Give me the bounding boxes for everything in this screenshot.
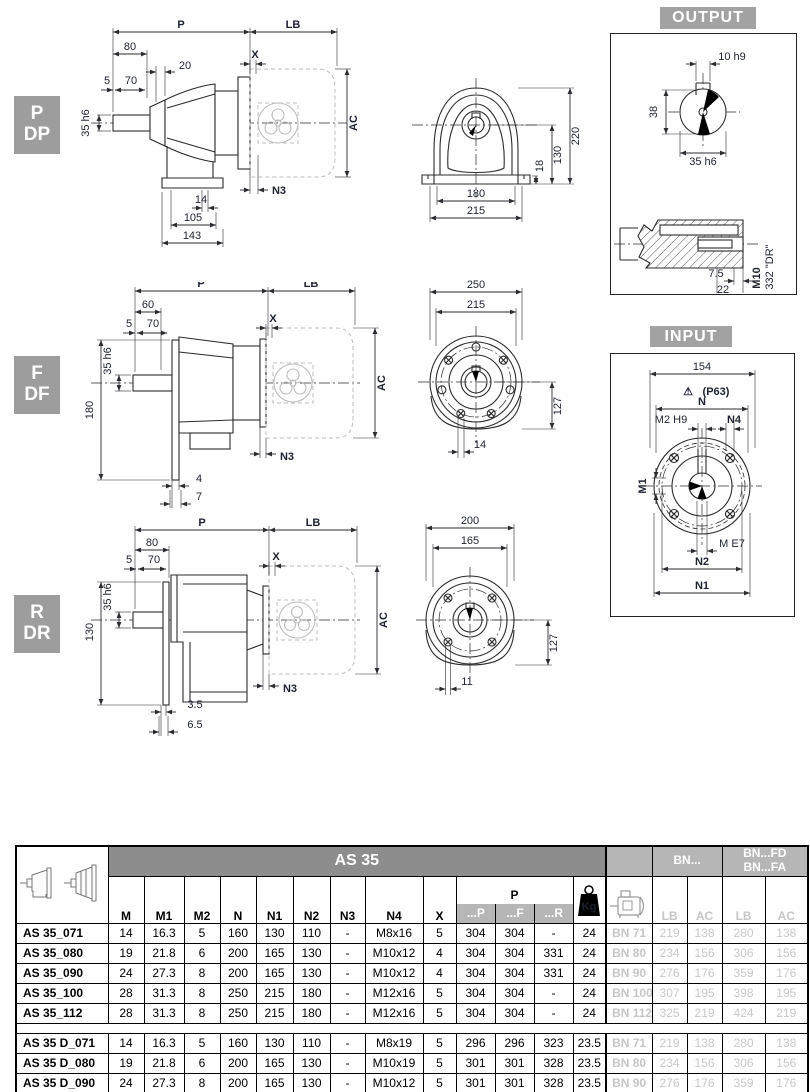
dim-value-cell: M12x16 <box>365 1003 423 1023</box>
dim-value-cell: 130 <box>256 923 293 943</box>
dim-value-cell: - <box>534 983 573 1003</box>
motor-dim-cell: 156 <box>687 943 722 963</box>
motor-dim-cell: 156 <box>765 943 808 963</box>
dim-value-cell: 328 <box>534 1053 573 1073</box>
p-group-header: P ...P ...F ...R <box>456 876 573 923</box>
dim-value-cell: 24 <box>573 983 606 1003</box>
dim-label-X: X <box>272 551 280 563</box>
motor-band <box>606 846 652 876</box>
output-label-text: OUTPUT <box>672 9 744 27</box>
dim-value-cell: 160 <box>220 1033 256 1053</box>
table-row: AS 35_0801921.86200165130-M10x1243043043… <box>16 943 808 963</box>
dim-value-cell: 24 <box>573 963 606 983</box>
dim-label-220: 220 <box>570 127 582 145</box>
dim-value-cell: 4 <box>423 963 456 983</box>
dim-value-cell: 165 <box>256 943 293 963</box>
dim-value-cell: 250 <box>220 1003 256 1023</box>
table-row: AS 35_0711416.35160130110-M8x165304304-2… <box>16 923 808 943</box>
motor-dim-cell: 176 <box>687 1073 722 1092</box>
dim-value-cell: 31.3 <box>144 1003 184 1023</box>
dim-label-105: 105 <box>184 212 202 224</box>
dim-label-N1: N1 <box>695 580 709 592</box>
bnfd-line1: BN...FD <box>723 847 808 861</box>
dim-label-35h6: 35 h6 <box>80 109 92 137</box>
subcol-P: ...P <box>457 904 496 923</box>
dim-label-M2H9: M2 H9 <box>655 414 687 426</box>
dim-value-cell: 304 <box>456 983 495 1003</box>
dim-label-80: 80 <box>124 41 136 53</box>
dim-value-cell: M10x12 <box>365 1073 423 1092</box>
dim-label-4: 4 <box>196 473 202 485</box>
dim-label-N: N <box>698 396 706 408</box>
dim-value-cell: 200 <box>220 943 256 963</box>
gearbox-icon-single <box>20 868 51 898</box>
dim-value-cell: 4 <box>423 943 456 963</box>
dim-value-cell: M8x19 <box>365 1033 423 1053</box>
dim-label-P: P <box>177 19 184 31</box>
dim-label-DIN332: DIN 332 "DR" <box>764 244 776 293</box>
dim-value-cell: 21.8 <box>144 943 184 963</box>
dim-value-cell: 180 <box>293 1003 330 1023</box>
dim-label-70: 70 <box>147 318 159 330</box>
dim-label-14: 14 <box>474 439 486 451</box>
dim-label-M10: M10 <box>751 267 763 288</box>
bnfd-line2: BN...FA <box>723 861 808 875</box>
dim-value-cell: 24 <box>108 1073 144 1092</box>
dim-label-70: 70 <box>148 554 160 566</box>
dim-value-cell: 130 <box>256 1033 293 1053</box>
pdp-side-view-drawing: P LB 80 20 X 5 70 35 h6 AC N3 14 105 143 <box>15 12 405 268</box>
dim-value-cell: 200 <box>220 1053 256 1073</box>
dim-value-cell: 28 <box>108 983 144 1003</box>
motor-dim-cell: 219 <box>652 923 687 943</box>
model-cell: AS 35_112 <box>16 1003 108 1023</box>
dim-value-cell: 8 <box>184 1073 220 1092</box>
weight-column-header: Kg <box>573 876 606 923</box>
dim-value-cell: 31.3 <box>144 983 184 1003</box>
dim-label-5: 5 <box>126 318 132 330</box>
dim-value-cell: 23.5 <box>573 1053 606 1073</box>
dim-value-cell: 5 <box>423 923 456 943</box>
dim-label-22: 22 <box>717 284 729 293</box>
dim-value-cell: 304 <box>456 1003 495 1023</box>
dim-label-215: 215 <box>467 205 485 217</box>
dim-value-cell: 304 <box>495 983 534 1003</box>
dim-value-cell: 27.3 <box>144 1073 184 1092</box>
col-header-bnfd-ac: AC <box>765 876 808 923</box>
dim-value-cell: - <box>534 923 573 943</box>
col-header-bn-lb: LB <box>652 876 687 923</box>
table-row: AS 35 D_0902427.38200165130-M10x12530130… <box>16 1073 808 1092</box>
motor-dim-cell: 325 <box>652 1003 687 1023</box>
dim-label-N3: N3 <box>283 683 297 695</box>
dim-value-cell: - <box>330 1003 365 1023</box>
dim-value-cell: - <box>330 1073 365 1092</box>
motor-dim-cell: 306 <box>722 1053 765 1073</box>
motor-dim-cell: 195 <box>765 983 808 1003</box>
dim-label-6.5: 6.5 <box>187 719 202 731</box>
dim-value-cell: 301 <box>456 1053 495 1073</box>
input-label-text: INPUT <box>665 328 718 346</box>
dim-value-cell: M10x12 <box>365 963 423 983</box>
dim-label-154: 154 <box>693 361 711 373</box>
dim-label-35h6: 35 h6 <box>689 156 717 168</box>
dim-value-cell: 14 <box>108 1033 144 1053</box>
motor-dim-cell: 219 <box>652 1033 687 1053</box>
dim-label-70: 70 <box>125 75 137 87</box>
input-detail-drawing: 154 ⚠ (P63) N M2 H9 N4 M1 M E7 N2 N1 <box>610 353 793 615</box>
model-cell: AS 35_080 <box>16 943 108 963</box>
col-header-N2: N2 <box>293 876 330 923</box>
dim-value-cell: - <box>330 1053 365 1073</box>
motor-dim-cell: 195 <box>687 983 722 1003</box>
dim-value-cell: 304 <box>456 943 495 963</box>
dim-value-cell: 165 <box>256 1073 293 1092</box>
catalog-page: P DP F DF R DR P LB 80 20 X 5 70 35 h6 A… <box>0 0 810 1092</box>
dim-label-ME7: M E7 <box>719 538 745 550</box>
dim-value-cell: 110 <box>293 1033 330 1053</box>
motor-size-cell: BN 100 <box>606 983 652 1003</box>
model-cell: AS 35_090 <box>16 963 108 983</box>
dim-value-cell: 110 <box>293 923 330 943</box>
dim-value-cell: 5 <box>423 1053 456 1073</box>
dim-label-11: 11 <box>461 676 472 688</box>
dim-value-cell: M8x16 <box>365 923 423 943</box>
dim-value-cell: 200 <box>220 1073 256 1092</box>
motor-dim-cell: 234 <box>652 1053 687 1073</box>
dim-value-cell: 200 <box>220 963 256 983</box>
motor-dim-cell: 424 <box>722 1003 765 1023</box>
model-cell: AS 35_071 <box>16 923 108 943</box>
motor-dim-cell: 280 <box>722 923 765 943</box>
dim-label-N3: N3 <box>272 185 286 197</box>
dim-label-80: 80 <box>146 537 158 549</box>
dim-label-215: 215 <box>467 299 485 311</box>
dim-value-cell: 323 <box>534 1033 573 1053</box>
col-header-M1: M1 <box>144 876 184 923</box>
dim-label-10h9: 10 h9 <box>718 51 746 63</box>
dim-value-cell: - <box>330 983 365 1003</box>
dim-value-cell: M10x19 <box>365 1053 423 1073</box>
subcol-R: ...R <box>534 904 573 923</box>
motor-dim-cell: 219 <box>687 1003 722 1023</box>
col-header-bn-ac: AC <box>687 876 722 923</box>
fdf-front-view-drawing: 250 215 127 14 <box>400 278 600 490</box>
model-column-header <box>16 846 108 923</box>
dim-label-7.5: 7.5 <box>708 268 723 280</box>
dim-value-cell: 21.8 <box>144 1053 184 1073</box>
series-title: AS 35 <box>108 846 606 876</box>
dim-value-cell: 6 <box>184 943 220 963</box>
dim-label-7: 7 <box>196 491 202 503</box>
motor-dim-cell: 307 <box>652 983 687 1003</box>
motor-dim-cell: 234 <box>652 943 687 963</box>
dim-value-cell: M12x16 <box>365 983 423 1003</box>
dim-value-cell: 24 <box>573 923 606 943</box>
dim-value-cell: M10x12 <box>365 943 423 963</box>
dim-value-cell: 8 <box>184 963 220 983</box>
motor-dim-cell: 138 <box>687 1033 722 1053</box>
dim-label-200: 200 <box>461 515 479 527</box>
dim-label-X: X <box>269 313 277 325</box>
group-separator <box>16 1023 808 1033</box>
dim-label-35h6: 35 h6 <box>102 583 114 611</box>
dim-label-165: 165 <box>461 535 479 547</box>
dim-label-AC: AC <box>378 612 390 628</box>
dim-label-20: 20 <box>179 60 191 72</box>
motor-dim-cell: 176 <box>765 963 808 983</box>
dim-value-cell: 304 <box>456 963 495 983</box>
col-header-X: X <box>423 876 456 923</box>
col-header-M2: M2 <box>184 876 220 923</box>
pdp-front-view-drawing: 220 130 18 180 215 <box>398 38 603 263</box>
motor-size-cell: BN 90 <box>606 963 652 983</box>
dimension-table: AS 35 BN... BN...FD BN...FA M M1 M2 N N1… <box>15 845 809 1092</box>
motor-size-cell: BN 112 <box>606 1003 652 1023</box>
dim-value-cell: 296 <box>456 1033 495 1053</box>
motor-size-cell: BN 71 <box>606 923 652 943</box>
bn-group-header: BN... <box>652 846 722 876</box>
dim-value-cell: - <box>330 963 365 983</box>
dim-value-cell: 24 <box>573 943 606 963</box>
dim-label-LB: LB <box>306 517 321 529</box>
dim-value-cell: 130 <box>293 943 330 963</box>
dim-value-cell: - <box>330 923 365 943</box>
table-row: AS 35_1122831.38250215180-M12x165304304-… <box>16 1003 808 1023</box>
motor-size-cell: BN 80 <box>606 1053 652 1073</box>
dim-value-cell: 8 <box>184 983 220 1003</box>
dim-label-N2: N2 <box>695 556 709 568</box>
motor-dim-cell: 138 <box>765 923 808 943</box>
dim-value-cell: 24 <box>108 963 144 983</box>
dim-value-cell: 304 <box>456 923 495 943</box>
dim-value-cell: 215 <box>256 983 293 1003</box>
dim-value-cell: 24 <box>573 1003 606 1023</box>
dim-value-cell: 304 <box>495 943 534 963</box>
dim-value-cell: 180 <box>293 983 330 1003</box>
fdf-side-view-drawing: P LB 60 X 5 70 35 h6 180 AC N3 4 7 <box>15 282 405 512</box>
dim-value-cell: - <box>330 943 365 963</box>
dim-value-cell: 304 <box>495 963 534 983</box>
dim-label-5: 5 <box>104 75 110 87</box>
dim-label-250: 250 <box>467 279 485 291</box>
warning-icon: ⚠ <box>683 386 693 398</box>
dim-label-38: 38 <box>648 106 660 118</box>
motor-dim-cell: 219 <box>765 1003 808 1023</box>
dim-label-143: 143 <box>183 230 201 242</box>
motor-dim-cell: 156 <box>765 1053 808 1073</box>
dim-value-cell: 23.5 <box>573 1033 606 1053</box>
dim-label-N4: N4 <box>727 414 742 426</box>
motor-dim-cell: 359 <box>722 963 765 983</box>
dim-value-cell: 5 <box>184 1033 220 1053</box>
model-cell: AS 35 D_090 <box>16 1073 108 1092</box>
dim-label-180: 180 <box>467 188 485 200</box>
dim-value-cell: 27.3 <box>144 963 184 983</box>
motor-dim-cell: 359 <box>722 1073 765 1092</box>
col-header-M: M <box>108 876 144 923</box>
dim-label-P: P <box>198 517 205 529</box>
dim-value-cell: 5 <box>184 923 220 943</box>
dim-value-cell: 304 <box>495 1003 534 1023</box>
bnfd-group-header: BN...FD BN...FA <box>722 846 808 876</box>
dim-value-cell: 5 <box>423 1073 456 1092</box>
dim-value-cell: 160 <box>220 923 256 943</box>
dim-label-P63: (P63) <box>703 386 730 398</box>
dim-label-M1: M1 <box>637 478 649 493</box>
dim-value-cell: 331 <box>534 943 573 963</box>
dim-value-cell: - <box>330 1033 365 1053</box>
motor-dim-cell: 156 <box>687 1053 722 1073</box>
dim-value-cell: 5 <box>423 1003 456 1023</box>
weight-icon: Kg <box>577 884 601 920</box>
dim-label-P: P <box>197 282 204 290</box>
dim-label-AC: AC <box>348 115 360 131</box>
dim-value-cell: 8 <box>184 1003 220 1023</box>
dim-value-cell: 328 <box>534 1073 573 1092</box>
motor-dim-cell: 276 <box>652 963 687 983</box>
motor-dim-cell: 176 <box>765 1073 808 1092</box>
dim-label-127: 127 <box>548 634 560 652</box>
col-header-N: N <box>220 876 256 923</box>
dim-value-cell: 296 <box>495 1033 534 1053</box>
rdr-front-view-drawing: 200 165 127 11 <box>400 515 600 730</box>
dim-label-14: 14 <box>195 194 207 206</box>
table-row: AS 35_1002831.38250215180-M12x165304304-… <box>16 983 808 1003</box>
model-cell: AS 35 D_071 <box>16 1033 108 1053</box>
dim-value-cell: 130 <box>293 1073 330 1092</box>
dim-value-cell: 19 <box>108 943 144 963</box>
dim-label-LB: LB <box>286 19 301 31</box>
gearbox-icons <box>19 861 105 905</box>
motor-dim-cell: 138 <box>765 1033 808 1053</box>
gearbox-icon-double <box>64 865 96 901</box>
dim-value-cell: 165 <box>256 963 293 983</box>
output-detail-drawing: 10 h9 38 35 h6 7.5 22 M10 DIN 332 "DR" <box>610 33 795 293</box>
dim-value-cell: 301 <box>456 1073 495 1092</box>
rdr-side-view-drawing: P LB 80 X 5 70 35 h6 130 AC N3 3.5 6.5 <box>15 512 405 740</box>
dim-value-cell: 16.3 <box>144 1033 184 1053</box>
table-row: AS 35 D_0801921.86200165130-M10x19530130… <box>16 1053 808 1073</box>
dim-value-cell: 14 <box>108 923 144 943</box>
subcol-F: ...F <box>495 904 534 923</box>
dim-value-cell: 23.5 <box>573 1073 606 1092</box>
dim-label-3.5: 3.5 <box>187 699 202 711</box>
motor-dim-cell: 306 <box>722 943 765 963</box>
dim-value-cell: 5 <box>423 1033 456 1053</box>
motor-size-cell: BN 71 <box>606 1033 652 1053</box>
dim-label-35h6: 35 h6 <box>102 347 114 375</box>
dim-value-cell: 165 <box>256 1053 293 1073</box>
motor-dim-cell: 398 <box>722 983 765 1003</box>
dim-label-N3: N3 <box>280 451 294 463</box>
dim-value-cell: 331 <box>534 963 573 983</box>
dim-value-cell: 28 <box>108 1003 144 1023</box>
kg-label: Kg <box>582 901 597 913</box>
dim-value-cell: 250 <box>220 983 256 1003</box>
dim-value-cell: 5 <box>423 983 456 1003</box>
table-row: AS 35_0902427.38200165130-M10x1243043043… <box>16 963 808 983</box>
dim-value-cell: 130 <box>293 1053 330 1073</box>
motor-column-header <box>606 876 652 923</box>
motor-size-cell: BN 80 <box>606 943 652 963</box>
dim-label-18: 18 <box>534 160 546 172</box>
col-header-N4: N4 <box>365 876 423 923</box>
dim-value-cell: 215 <box>256 1003 293 1023</box>
dim-value-cell: - <box>534 1003 573 1023</box>
col-header-bnfd-lb: LB <box>722 876 765 923</box>
dim-label-180: 180 <box>84 401 96 419</box>
input-section-label: INPUT <box>650 326 732 347</box>
dim-label-LB: LB <box>304 282 319 290</box>
dim-value-cell: 16.3 <box>144 923 184 943</box>
dim-value-cell: 301 <box>495 1073 534 1092</box>
model-cell: AS 35 D_080 <box>16 1053 108 1073</box>
dim-value-cell: 301 <box>495 1053 534 1073</box>
col-header-N1: N1 <box>256 876 293 923</box>
col-header-N3: N3 <box>330 876 365 923</box>
dim-label-127: 127 <box>552 397 564 415</box>
dim-label-X: X <box>251 49 259 61</box>
output-section-label: OUTPUT <box>660 7 756 29</box>
table-row: AS 35 D_0711416.35160130110-M8x195296296… <box>16 1033 808 1053</box>
dim-label-5: 5 <box>126 554 132 566</box>
motor-dim-cell: 176 <box>687 963 722 983</box>
dim-value-cell: 6 <box>184 1053 220 1073</box>
dim-value-cell: 19 <box>108 1053 144 1073</box>
dim-value-cell: 130 <box>293 963 330 983</box>
dim-label-AC: AC <box>376 375 388 391</box>
iec-motor-icon <box>608 888 650 920</box>
motor-size-cell: BN 90 <box>606 1073 652 1092</box>
motor-dim-cell: 138 <box>687 923 722 943</box>
motor-dim-cell: 280 <box>722 1033 765 1053</box>
dim-value-cell: 304 <box>495 923 534 943</box>
dim-label-60: 60 <box>142 299 154 311</box>
p-group-label: P <box>457 888 573 904</box>
dim-label-130: 130 <box>84 623 96 641</box>
motor-dim-cell: 276 <box>652 1073 687 1092</box>
dim-label-130: 130 <box>552 146 564 164</box>
model-cell: AS 35_100 <box>16 983 108 1003</box>
